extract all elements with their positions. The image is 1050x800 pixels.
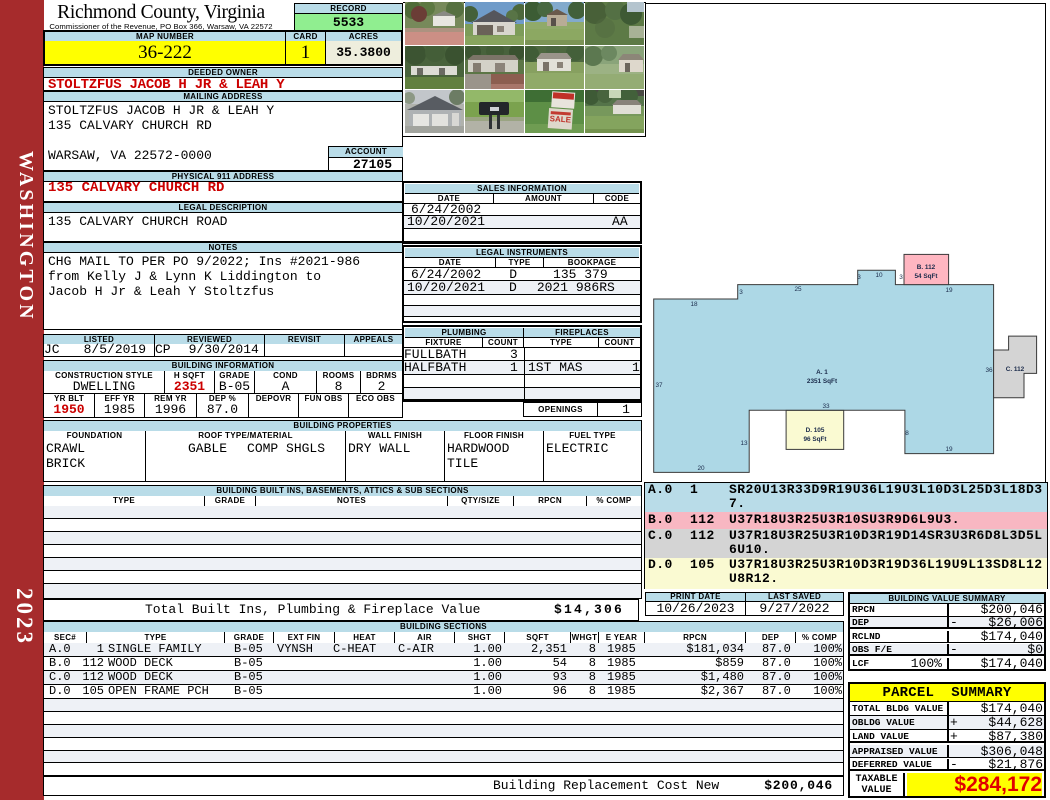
svg-text:SALE: SALE: [549, 114, 572, 125]
svg-text:18: 18: [690, 301, 698, 308]
svg-text:36: 36: [985, 367, 993, 374]
svg-text:8: 8: [905, 430, 909, 437]
svg-text:3: 3: [857, 274, 861, 281]
svg-text:3: 3: [739, 289, 743, 296]
svg-text:54 SqFt: 54 SqFt: [914, 273, 938, 280]
svg-text:B. 112: B. 112: [917, 264, 936, 271]
svg-text:D. 105: D. 105: [806, 427, 825, 434]
svg-text:96 SqFt: 96 SqFt: [803, 436, 827, 443]
svg-text:33: 33: [822, 403, 830, 410]
svg-text:20: 20: [697, 465, 705, 472]
svg-text:10: 10: [875, 272, 883, 279]
svg-text:C. 112: C. 112: [1006, 366, 1025, 373]
svg-text:13: 13: [740, 440, 748, 447]
svg-text:A. 1: A. 1: [816, 369, 828, 376]
svg-text:19: 19: [945, 287, 953, 294]
svg-text:19: 19: [945, 446, 953, 453]
svg-text:3: 3: [899, 274, 903, 281]
svg-text:25: 25: [794, 286, 802, 293]
svg-text:2351 SqFt: 2351 SqFt: [807, 378, 838, 385]
svg-text:37: 37: [655, 382, 663, 389]
